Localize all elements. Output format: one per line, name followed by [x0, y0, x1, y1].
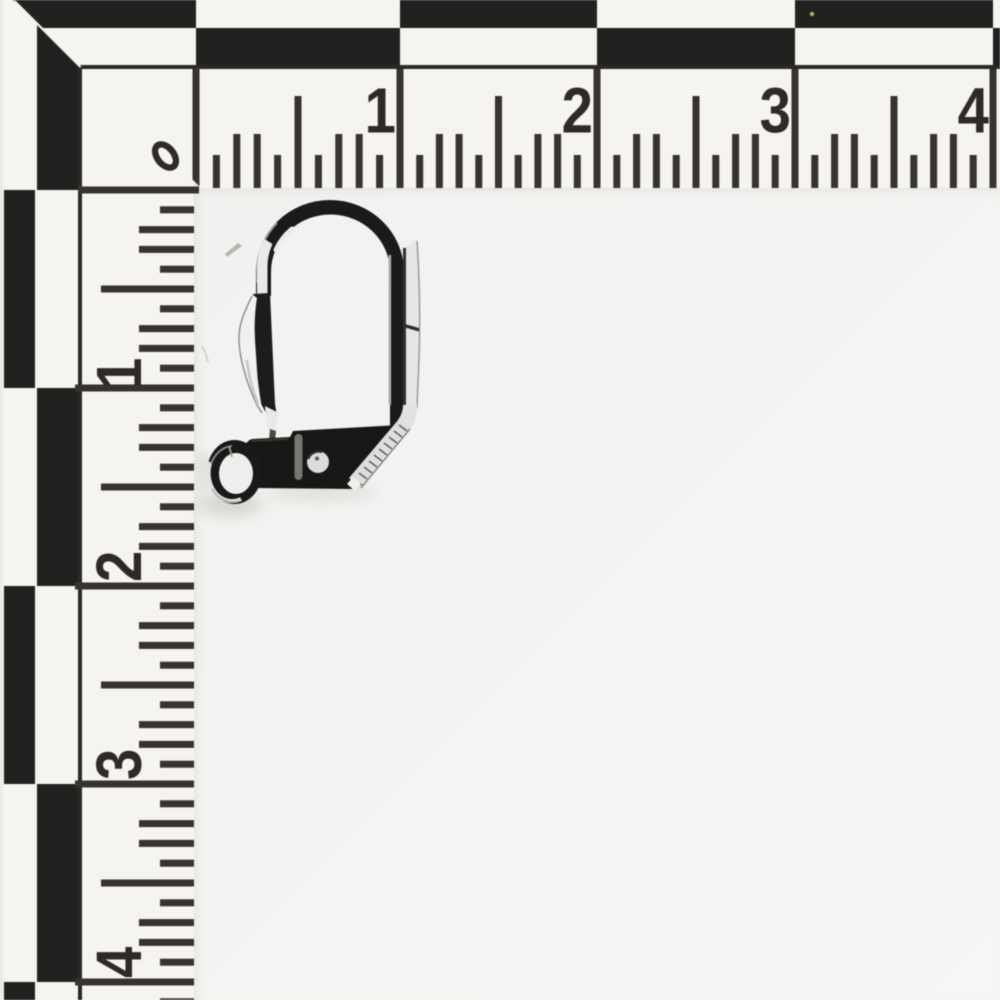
svg-text:3: 3	[760, 74, 791, 146]
svg-text:2: 2	[562, 74, 593, 146]
svg-text:1: 1	[365, 74, 396, 146]
svg-text:3: 3	[83, 749, 155, 780]
svg-text:4: 4	[83, 946, 155, 978]
svg-text:2: 2	[83, 551, 155, 582]
svg-text:4: 4	[958, 74, 990, 146]
svg-text:1: 1	[83, 358, 155, 389]
